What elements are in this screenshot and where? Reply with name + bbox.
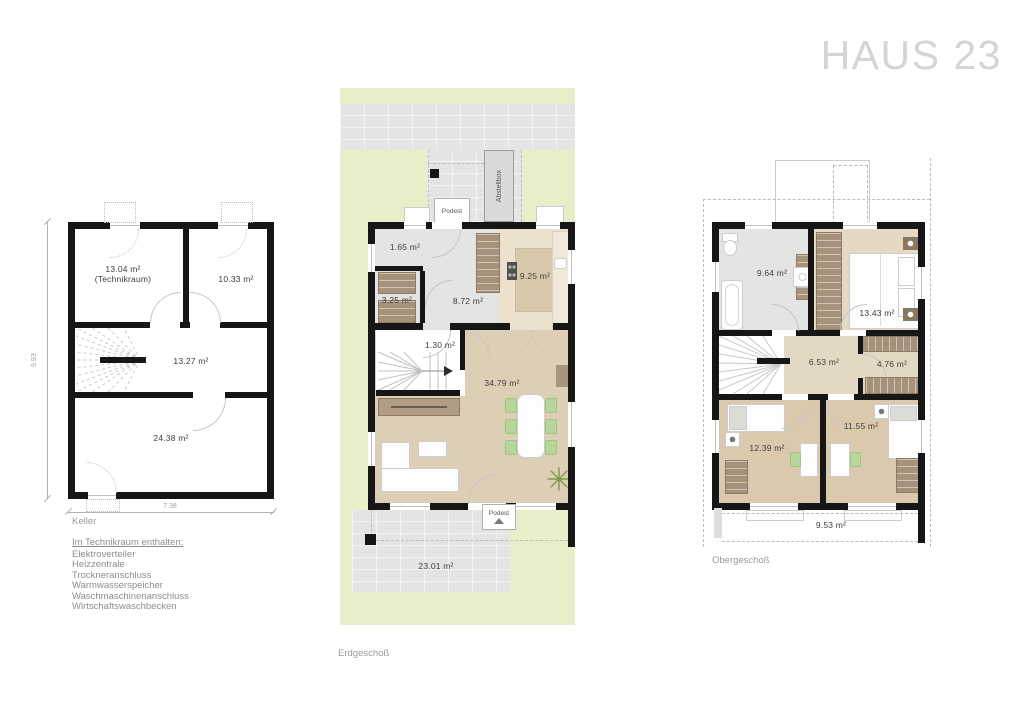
wall: [75, 392, 267, 398]
window-swing-arc: [86, 462, 117, 493]
room-area-label: 1.65 m²: [372, 242, 438, 252]
window: [110, 222, 140, 229]
stairs: [719, 336, 784, 394]
chair: [850, 452, 861, 467]
door-swing-arc: [190, 292, 221, 323]
light-well: [86, 499, 120, 512]
dining-table: [517, 394, 545, 458]
chair: [545, 398, 557, 413]
roof-dashed: [930, 158, 931, 547]
dimension-line-horizontal: [68, 512, 274, 513]
wall: [375, 266, 423, 271]
stair-handrail: [757, 358, 790, 364]
window: [516, 503, 556, 510]
light-well: [221, 202, 253, 223]
room-area-label: 1.30 m²: [407, 340, 473, 350]
room-area-label: 9.64 m²: [739, 268, 805, 278]
window-sill: [404, 207, 430, 223]
wardrobe: [378, 272, 416, 294]
podest-terrace: Podest: [482, 504, 516, 530]
window-swing-arc: [218, 229, 247, 258]
wall: [719, 394, 918, 400]
window-swing-arc: [110, 229, 139, 258]
room-area-label: 8.72 m²: [435, 296, 501, 306]
light-well: [104, 202, 136, 223]
window: [368, 432, 375, 466]
window: [568, 250, 575, 284]
room-area-label: 4.76 m²: [859, 359, 925, 369]
balcony-dashed: [722, 513, 918, 514]
wall: [918, 510, 925, 543]
room-area-label: 10.33 m²: [203, 274, 269, 284]
kitchen-sink: [554, 258, 567, 269]
window: [568, 402, 575, 447]
nightstand: [903, 237, 918, 250]
entry-door-opening: [432, 222, 462, 229]
floor-caption: Obergeschoß: [712, 555, 852, 566]
window: [750, 503, 798, 510]
wall: [183, 229, 189, 324]
dimension-height-label: 9.93: [31, 340, 41, 380]
window: [918, 267, 925, 299]
window: [390, 503, 430, 510]
pillow: [729, 406, 747, 430]
podest-entry: Podest: [434, 198, 470, 224]
floor-caption: Keller: [72, 516, 212, 527]
door-swing-arc: [193, 398, 226, 431]
wardrobe: [725, 460, 748, 494]
wall: [858, 378, 863, 400]
wall: [375, 323, 423, 330]
window: [918, 420, 925, 453]
room-area-label: 11.55 m²: [825, 421, 897, 431]
roof-dashed: [703, 199, 930, 200]
dimension-tick: [44, 495, 51, 502]
wardrobe: [816, 232, 842, 330]
abstellbox: Abstellbox: [484, 150, 514, 222]
chair: [505, 398, 517, 413]
direction-arrow: [494, 518, 504, 524]
door-swing-arc: [150, 292, 181, 323]
boundary-dashed: [371, 540, 568, 541]
sideboard: [556, 365, 568, 387]
toilet: [723, 240, 737, 256]
roof-dashed: [703, 199, 704, 547]
page-title: HAUS 23: [821, 32, 1002, 79]
chair: [505, 440, 517, 455]
balcony-dashed: [722, 541, 918, 542]
chair: [505, 419, 517, 434]
stairs: [378, 352, 454, 390]
wall: [820, 400, 826, 503]
shelf: [860, 336, 920, 352]
room-area-label: 6.53 m²: [791, 357, 857, 367]
window: [712, 262, 719, 292]
sideboard: [378, 398, 460, 416]
nightstand: [874, 404, 889, 419]
abstellbox-label: Abstellbox: [496, 170, 503, 202]
bathtub: [721, 280, 743, 330]
pillow: [890, 406, 917, 421]
desk: [830, 443, 850, 477]
floor-caption: Erdgeschoß: [338, 648, 478, 659]
wall: [712, 222, 925, 229]
chair: [790, 452, 801, 467]
chair: [545, 440, 557, 455]
sofa: [381, 468, 459, 492]
dimension-width-label: 7.38: [150, 503, 190, 510]
pillow: [898, 257, 915, 286]
note-item: Wirtschaftswaschbecken: [72, 602, 272, 612]
wall: [553, 323, 568, 330]
podest-label: Podest: [489, 510, 509, 517]
room-area-label: 13.43 m²: [841, 308, 913, 318]
room-area-label: 34.79 m²: [466, 378, 538, 388]
balcony-pillar: [714, 508, 722, 538]
wall: [858, 336, 863, 354]
boundary-dashed: [521, 150, 522, 222]
window: [536, 222, 560, 229]
podest-label: Podest: [442, 208, 462, 215]
dimension-line-vertical: [47, 222, 48, 499]
dimension-tick: [270, 508, 277, 515]
window: [404, 222, 426, 229]
window-sill: [536, 206, 564, 223]
room-area-label: 12.39 m²: [731, 443, 803, 453]
wall: [450, 323, 498, 330]
room-area-label: 23.01 m²: [400, 561, 472, 571]
room-area-label: 13.04 m² (Technikraum): [78, 264, 168, 284]
sidewalk-paving: [340, 104, 575, 150]
window: [745, 222, 772, 229]
wall: [808, 229, 814, 333]
window: [848, 503, 896, 510]
dormer-dashed-outline: [833, 165, 868, 224]
coffee-table: [418, 441, 447, 457]
boundary-post: [430, 169, 439, 178]
window: [843, 222, 877, 229]
wardrobe: [896, 458, 919, 493]
room-area-label: 13.27 m²: [158, 356, 224, 366]
wall: [498, 323, 510, 330]
wall: [376, 390, 460, 396]
chair: [545, 419, 557, 434]
boundary-post: [365, 534, 376, 545]
wall: [719, 330, 918, 336]
wall: [68, 222, 75, 499]
stair-handrail: [100, 357, 146, 363]
shelf: [865, 377, 920, 394]
window: [88, 492, 116, 499]
wall: [267, 222, 274, 499]
room-area-label: 3.25 m²: [364, 295, 430, 305]
boundary-dashed: [428, 163, 484, 164]
room-area-label: 24.38 m²: [138, 433, 204, 443]
window: [218, 222, 248, 229]
hall-cabinet: [476, 233, 500, 293]
notes-list: Elektroverteiler Heizzentrale Trockneran…: [72, 550, 272, 612]
room-area-label: 9.25 m²: [502, 271, 568, 281]
floor-plan-sheet: HAUS 23: [0, 0, 1024, 724]
notes-heading: Im Technikraum enthalten:: [72, 537, 262, 548]
room-area-label: 9.53 m²: [795, 520, 867, 530]
bathtub-basin: [725, 284, 739, 326]
wall: [568, 510, 575, 547]
window: [712, 420, 719, 453]
